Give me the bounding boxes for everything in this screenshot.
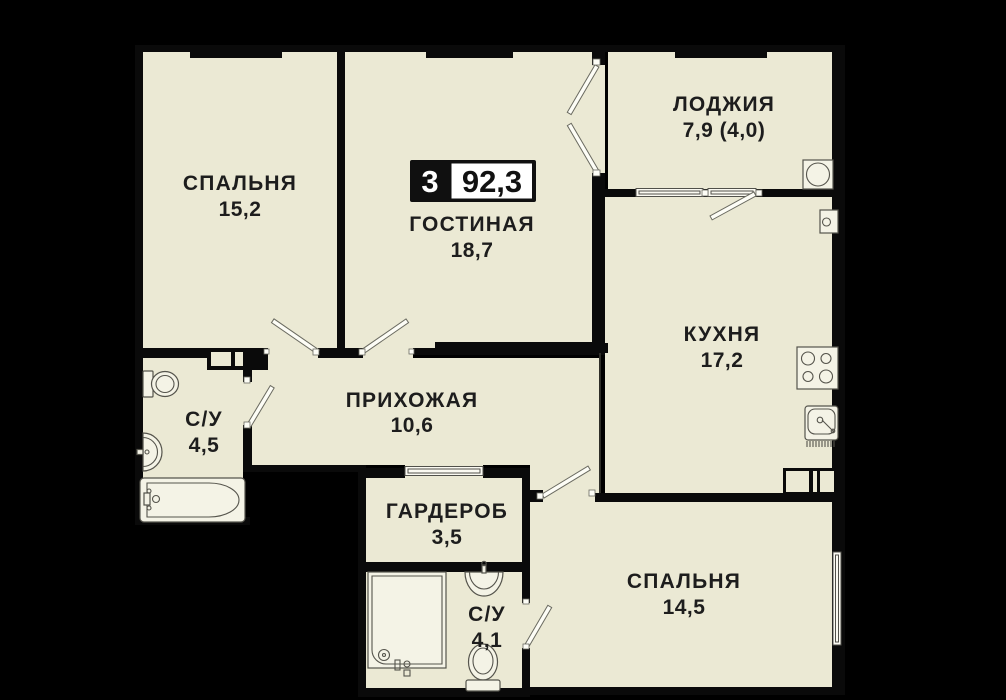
duct-opening [235, 352, 243, 366]
stove-icon [797, 347, 838, 389]
room-kitchen-label: КУХНЯ [684, 323, 761, 346]
room-loggia-label: ЛОДЖИЯ [673, 93, 775, 116]
summary-badge: 3 92,3 [410, 160, 536, 202]
duct-opening [211, 352, 231, 366]
room-wardrobe-label: ГАРДЕРОБ [386, 500, 508, 523]
window-pier-living [426, 45, 513, 58]
room-kitchen-area: 17,2 [701, 349, 744, 372]
badge-total-area: 92,3 [462, 164, 522, 199]
room-bedroom-1-label: СПАЛЬНЯ [183, 172, 297, 195]
doorway-bedroom-2 [543, 493, 595, 505]
duct-opening [820, 471, 834, 492]
room-hallway-label: ПРИХОЖАЯ [346, 389, 479, 412]
shower-icon [368, 572, 446, 676]
water-heater-icon [803, 160, 833, 189]
doorway-living [363, 348, 413, 360]
toilet-icon [143, 371, 179, 397]
vent-box-icon [820, 210, 838, 233]
window-pier-loggia [675, 45, 767, 58]
floor-plan-canvas: СПАЛЬНЯ 15,2 ГОСТИНАЯ 18,7 ЛОДЖИЯ 7,9 (4… [0, 0, 1006, 700]
open-plan-boundary [599, 353, 601, 493]
kitchen-window [636, 189, 703, 197]
bedroom-2-window [833, 552, 841, 645]
room-wardrobe-area: 3,5 [432, 526, 463, 549]
badge-rooms-count: 3 [421, 164, 438, 199]
wardrobe-pocket-door [405, 467, 483, 476]
duct-opening [786, 471, 809, 492]
room-living-area: 18,7 [451, 239, 494, 262]
room-bathroom-2-label: С/У [468, 603, 506, 626]
room-bathroom-1-area: 4,5 [189, 434, 220, 457]
duct-opening [813, 471, 817, 492]
room-bedroom-1-area: 15,2 [219, 198, 262, 221]
room-bathroom-2-area: 4,1 [472, 629, 503, 652]
floor-plan: СПАЛЬНЯ 15,2 ГОСТИНАЯ 18,7 ЛОДЖИЯ 7,9 (4… [0, 0, 1006, 700]
room-hallway-area: 10,6 [391, 414, 434, 437]
room-bedroom-2-area: 14,5 [663, 596, 706, 619]
room-loggia-area: 7,9 (4,0) [683, 119, 766, 142]
room-bedroom-2-label: СПАЛЬНЯ [627, 570, 741, 593]
room-living-label: ГОСТИНАЯ [409, 213, 535, 236]
doorway-loggia [592, 65, 605, 173]
bathtub-icon [140, 478, 245, 522]
room-bedroom-2-floor [530, 502, 832, 687]
window-pier-bedroom-1 [190, 45, 282, 58]
room-bathroom-1-label: С/У [185, 408, 223, 431]
